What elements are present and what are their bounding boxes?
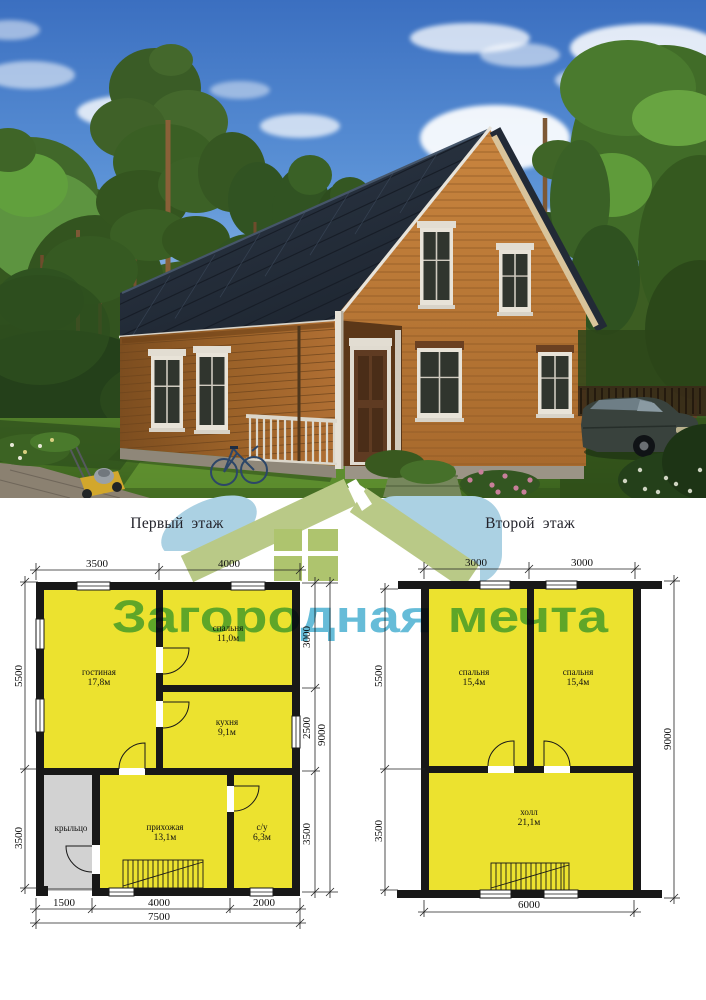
svg-text:7500: 7500 xyxy=(148,911,171,923)
svg-text:4000: 4000 xyxy=(218,558,241,570)
svg-text:кухня: кухня xyxy=(216,717,238,727)
svg-text:6,3м: 6,3м xyxy=(253,833,271,843)
svg-text:спальня: спальня xyxy=(459,667,489,677)
svg-text:3500: 3500 xyxy=(86,558,109,570)
svg-text:5500: 5500 xyxy=(373,665,385,688)
svg-text:крыльцо: крыльцо xyxy=(55,823,88,833)
svg-text:3500: 3500 xyxy=(13,827,25,850)
svg-text:9,1м: 9,1м xyxy=(218,728,236,738)
svg-text:прихожая: прихожая xyxy=(147,822,184,832)
svg-text:9000: 9000 xyxy=(662,728,674,751)
svg-text:15,4м: 15,4м xyxy=(567,678,590,688)
svg-text:холл: холл xyxy=(520,807,538,817)
svg-text:2000: 2000 xyxy=(253,897,276,909)
svg-text:спальня: спальня xyxy=(563,667,593,677)
svg-text:2500: 2500 xyxy=(301,717,313,740)
svg-text:гостиная: гостиная xyxy=(82,667,116,677)
svg-text:Первый этаж: Первый этаж xyxy=(130,515,223,532)
svg-text:1500: 1500 xyxy=(53,897,76,909)
svg-text:Второй этаж: Второй этаж xyxy=(485,515,575,532)
svg-text:6000: 6000 xyxy=(518,899,541,911)
svg-text:15,4м: 15,4м xyxy=(463,678,486,688)
svg-text:с/у: с/у xyxy=(257,822,268,832)
svg-text:3000: 3000 xyxy=(571,557,594,569)
svg-text:17,8м: 17,8м xyxy=(88,678,111,688)
svg-text:Загородная мечта: Загородная мечта xyxy=(112,591,609,642)
svg-text:21,1м: 21,1м xyxy=(518,818,541,828)
svg-text:13,1м: 13,1м xyxy=(154,833,177,843)
svg-text:4000: 4000 xyxy=(148,897,171,909)
svg-text:5500: 5500 xyxy=(13,665,25,688)
svg-text:3000: 3000 xyxy=(465,557,488,569)
svg-text:3500: 3500 xyxy=(301,823,313,846)
svg-text:3500: 3500 xyxy=(373,820,385,843)
svg-text:9000: 9000 xyxy=(316,724,328,747)
